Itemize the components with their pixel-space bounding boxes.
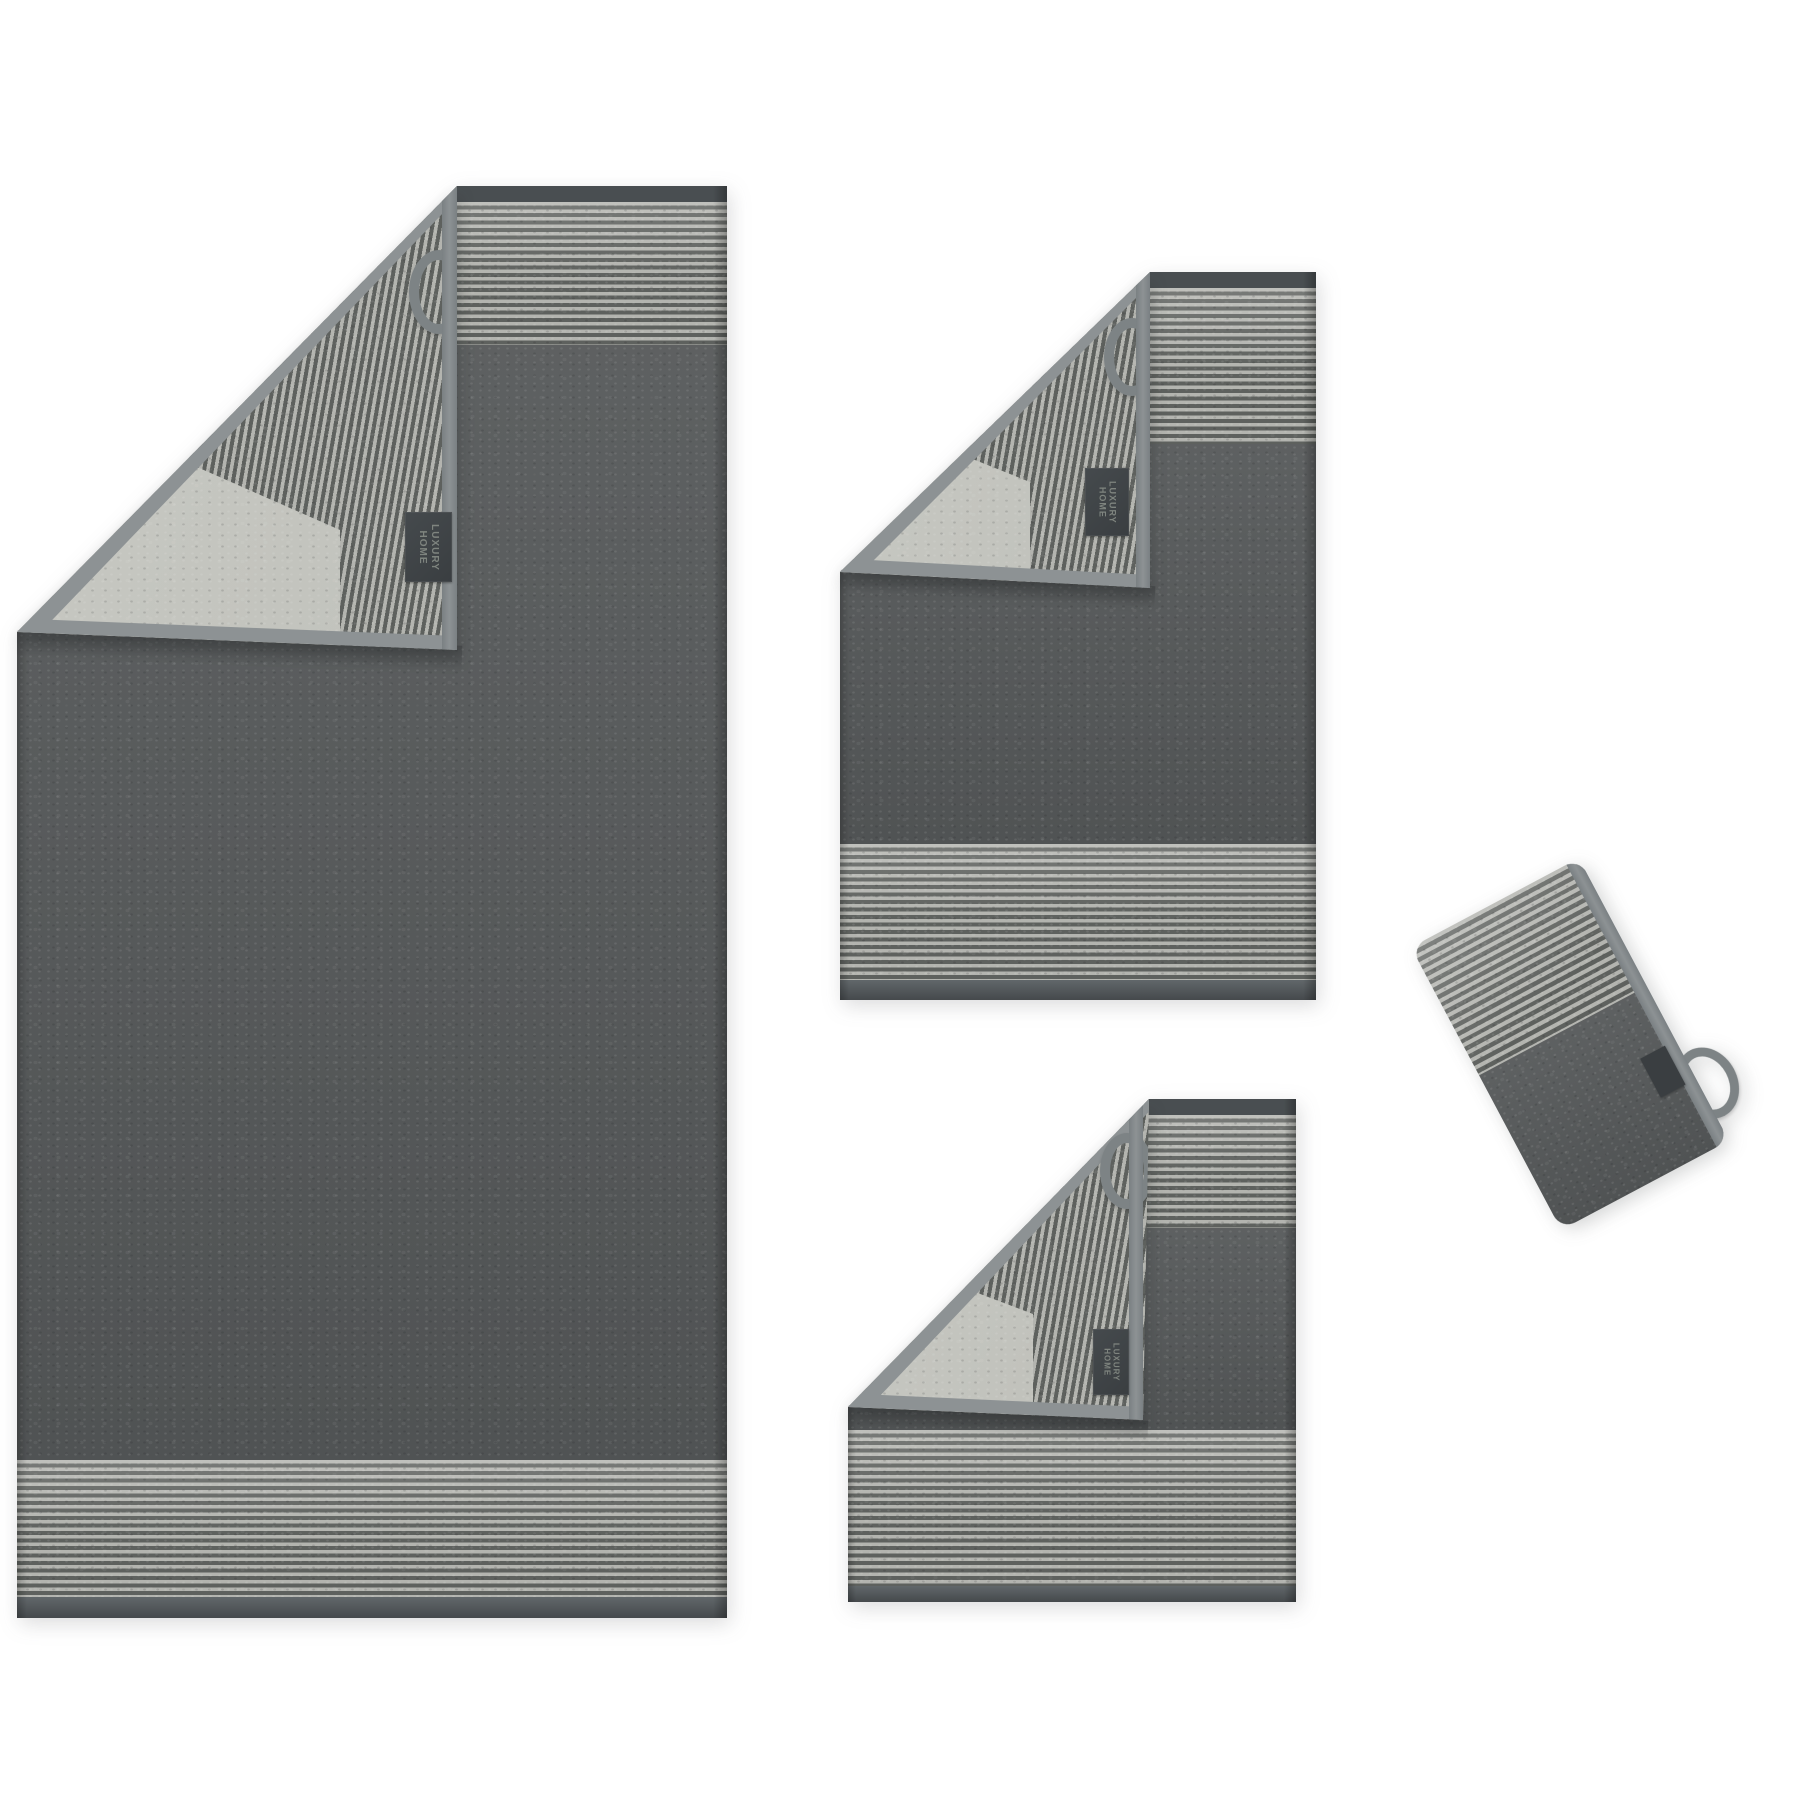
brand-label-line1: LUXURY [429,524,441,571]
guest-towel: LUXURY HOME [848,1099,1296,1602]
product-photo-towel-set: LUXURY HOME [0,0,1800,1800]
brand-label-line1: LUXURY [1107,481,1117,524]
hand-towel-fold-binding-vertical [1136,272,1150,588]
hand-towel-brand-label: LUXURY HOME [1085,468,1129,536]
brand-label-line1: LUXURY [1111,1343,1120,1382]
bath-towel-hanging-loop [409,250,469,334]
brand-label-line2: HOME [1097,486,1107,517]
wash-mitt [1411,858,1729,1230]
brand-label-line2: HOME [1102,1348,1111,1376]
brand-label-line2: HOME [417,530,429,564]
guest-towel-folded-corner: LUXURY HOME [848,1099,1296,1602]
guest-towel-fold-binding-vertical [1129,1099,1143,1420]
hand-towel-folded-corner: LUXURY HOME [840,272,1316,1000]
hand-towel: LUXURY HOME [840,272,1316,1000]
guest-towel-hanging-loop [1100,1133,1154,1209]
guest-towel-brand-label: LUXURY HOME [1093,1329,1129,1395]
bath-towel-flap-stripes [17,186,727,1618]
bath-towel-brand-label: LUXURY HOME [405,512,452,582]
hand-towel-flap-stripes [840,272,1316,1000]
bath-towel: LUXURY HOME [17,186,727,1618]
bath-towel-folded-corner: LUXURY HOME [17,186,727,1618]
wash-mitt-body [1411,858,1729,1230]
hand-towel-hanging-loop [1104,318,1160,396]
